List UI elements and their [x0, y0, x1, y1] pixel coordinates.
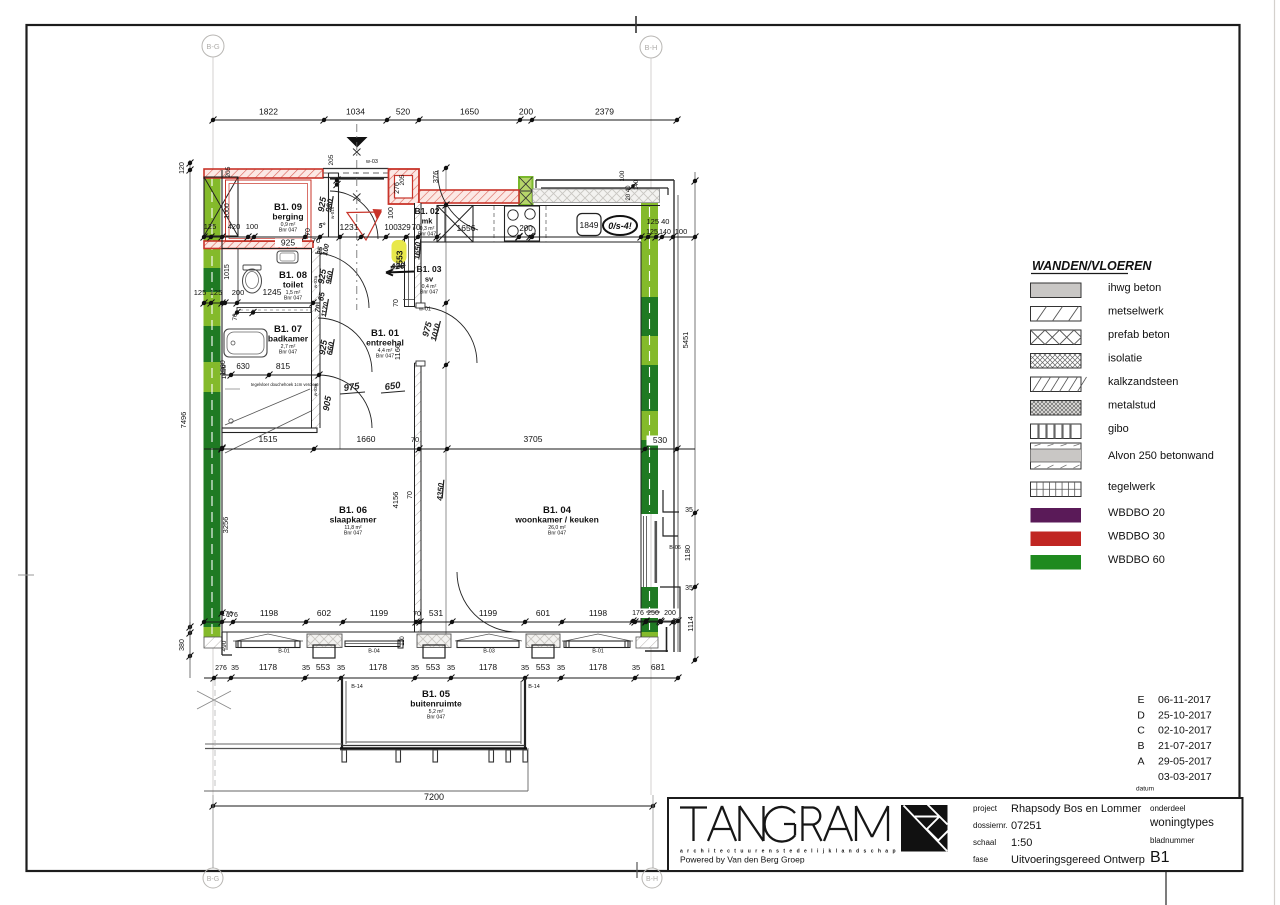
svg-text:29-05-2017: 29-05-2017: [1158, 756, 1212, 768]
svg-text:601: 601: [536, 608, 550, 618]
svg-text:Bnr 047: Bnr 047: [279, 228, 297, 234]
svg-text:tegelvloer douchehoek 1cm verd: tegelvloer douchehoek 1cm verdiept: [251, 382, 319, 387]
svg-text:531: 531: [429, 608, 443, 618]
svg-text:kalkzandsteen: kalkzandsteen: [1108, 376, 1178, 388]
svg-text:onderdeel: onderdeel: [1150, 804, 1186, 813]
svg-text:70: 70: [232, 313, 239, 321]
svg-text:1198: 1198: [260, 608, 279, 618]
svg-text:1515: 1515: [259, 434, 278, 444]
svg-text:70: 70: [411, 435, 419, 444]
svg-text:1:50: 1:50: [1011, 837, 1032, 849]
svg-text:1656: 1656: [457, 223, 476, 233]
svg-text:70: 70: [407, 491, 414, 499]
svg-text:376: 376: [431, 171, 440, 184]
svg-text:tegelwerk: tegelwerk: [1108, 481, 1156, 493]
svg-text:ihwg beton: ihwg beton: [1108, 282, 1161, 294]
svg-text:630: 630: [236, 362, 250, 371]
svg-text:Uitvoeringsgereed Ontwerp: Uitvoeringsgereed Ontwerp: [1011, 854, 1145, 866]
svg-text:Bnr 047: Bnr 047: [420, 290, 438, 296]
svg-text:125: 125: [646, 229, 658, 236]
svg-text:5°: 5°: [319, 222, 326, 230]
svg-text:4156: 4156: [391, 492, 400, 509]
svg-text:2379: 2379: [595, 107, 614, 117]
svg-text:100: 100: [388, 207, 395, 219]
svg-text:Bnr 047: Bnr 047: [427, 715, 445, 721]
svg-text:530: 530: [653, 435, 667, 445]
svg-text:Rhapsody Bos en Lommer: Rhapsody Bos en Lommer: [1011, 803, 1142, 815]
svg-text:1034: 1034: [346, 107, 365, 117]
svg-text:1660: 1660: [357, 434, 376, 444]
svg-text:1199: 1199: [370, 608, 389, 618]
svg-text:prefab beton: prefab beton: [1108, 329, 1170, 341]
svg-text:35: 35: [685, 507, 693, 514]
svg-text:C: C: [1137, 725, 1145, 737]
svg-text:Bnr 047: Bnr 047: [376, 354, 394, 360]
svg-text:1650: 1650: [460, 107, 479, 117]
svg-text:B-14: B-14: [351, 684, 363, 690]
svg-text:110: 110: [400, 636, 406, 646]
svg-text:slaapkamer: slaapkamer: [330, 515, 377, 525]
svg-text:1178: 1178: [259, 662, 278, 672]
svg-text:Powered by Van den Berg Groep: Powered by Van den Berg Groep: [680, 855, 805, 865]
svg-text:35: 35: [632, 663, 640, 672]
svg-text:1180: 1180: [683, 545, 692, 561]
svg-text:70: 70: [413, 611, 421, 618]
svg-text:200: 200: [519, 224, 533, 233]
svg-text:B: B: [1137, 740, 1144, 752]
svg-text:602: 602: [317, 608, 331, 618]
svg-text:1199: 1199: [479, 608, 498, 618]
svg-text:B-03: B-03: [483, 649, 495, 655]
svg-text:B-01: B-01: [278, 649, 290, 655]
svg-text:B-04: B-04: [368, 649, 380, 655]
svg-text:mk: mk: [422, 217, 434, 226]
svg-text:B-G: B-G: [207, 876, 219, 883]
svg-text:A: A: [1137, 756, 1144, 768]
svg-text:100: 100: [619, 170, 626, 181]
svg-text:1000: 1000: [224, 203, 231, 219]
svg-text:4350: 4350: [435, 482, 446, 502]
svg-text:B-14: B-14: [528, 684, 540, 690]
svg-text:w-01: w-01: [418, 307, 431, 313]
svg-text:100: 100: [384, 223, 398, 232]
svg-text:B-01: B-01: [592, 649, 604, 655]
svg-text:205: 205: [399, 174, 406, 185]
svg-text:329: 329: [397, 223, 411, 232]
svg-text:isolatie: isolatie: [1108, 353, 1142, 365]
svg-text:1178: 1178: [589, 662, 608, 672]
svg-text:1231: 1231: [340, 222, 359, 232]
svg-text:21-07-2017: 21-07-2017: [1158, 740, 1212, 752]
svg-text:35: 35: [231, 665, 239, 672]
svg-text:schaal: schaal: [973, 838, 996, 847]
svg-text:B-H: B-H: [646, 876, 658, 883]
svg-text:metselwerk: metselwerk: [1108, 306, 1164, 318]
svg-text:1114: 1114: [686, 616, 695, 632]
svg-text:70: 70: [393, 299, 400, 307]
svg-text:35: 35: [411, 663, 419, 672]
svg-text:woonkamer / keuken: woonkamer / keuken: [514, 515, 599, 525]
svg-text:B1: B1: [1150, 849, 1170, 866]
svg-text:5451: 5451: [681, 332, 690, 349]
svg-text:project: project: [973, 804, 998, 813]
svg-text:125: 125: [194, 288, 207, 297]
svg-text:datum: datum: [1136, 786, 1154, 793]
svg-text:200: 200: [519, 107, 533, 117]
svg-text:1245: 1245: [263, 287, 282, 297]
svg-text:125 40: 125 40: [647, 217, 670, 226]
svg-text:520: 520: [396, 107, 410, 117]
svg-text:metalstud: metalstud: [1108, 400, 1156, 412]
svg-text:3256: 3256: [221, 517, 230, 534]
svg-text:176: 176: [226, 612, 238, 619]
svg-text:1822: 1822: [259, 107, 278, 117]
svg-text:200: 200: [664, 610, 676, 617]
svg-text:Bnr 047: Bnr 047: [284, 296, 302, 302]
svg-text:3705: 3705: [524, 434, 543, 444]
svg-text:buitenruimte: buitenruimte: [410, 699, 462, 709]
svg-text:35: 35: [521, 663, 529, 672]
svg-text:200: 200: [232, 288, 245, 297]
svg-text:176: 176: [632, 610, 644, 617]
svg-text:35: 35: [302, 663, 310, 672]
svg-text:140: 140: [634, 179, 640, 190]
svg-text:B1. 02: B1. 02: [414, 206, 439, 216]
svg-text:1650: 1650: [412, 241, 423, 260]
svg-text:B-G: B-G: [206, 42, 220, 51]
svg-text:1880: 1880: [221, 364, 228, 379]
svg-text:140: 140: [659, 229, 671, 236]
svg-text:420: 420: [228, 222, 241, 231]
svg-text:toilet: toilet: [283, 280, 303, 290]
svg-text:380: 380: [179, 639, 186, 651]
svg-text:B-06: B-06: [669, 545, 681, 551]
svg-text:100: 100: [246, 222, 259, 231]
svg-text:WBDBO 60: WBDBO 60: [1108, 554, 1165, 566]
svg-text:35: 35: [557, 663, 565, 672]
svg-text:553: 553: [426, 662, 440, 672]
svg-text:Alvon 250 betonwand: Alvon 250 betonwand: [1108, 450, 1214, 462]
svg-text:25-10-2017: 25-10-2017: [1158, 710, 1212, 722]
svg-text:20 40: 20 40: [626, 185, 632, 201]
svg-text:06-11-2017: 06-11-2017: [1158, 694, 1211, 706]
svg-text:WANDEN/VLOEREN: WANDEN/VLOEREN: [1032, 259, 1152, 273]
svg-text:553: 553: [316, 662, 330, 672]
svg-text:Bnr 047: Bnr 047: [279, 350, 297, 356]
svg-text:badkamer: badkamer: [268, 334, 309, 344]
svg-text:125: 125: [204, 222, 217, 231]
svg-text:bladnummer: bladnummer: [1150, 836, 1195, 845]
svg-text:815: 815: [276, 361, 290, 371]
svg-text:Bnr 047: Bnr 047: [548, 531, 566, 537]
svg-text:70: 70: [305, 228, 312, 236]
svg-text:berging: berging: [272, 212, 303, 222]
svg-text:125: 125: [210, 288, 223, 297]
svg-text:0/s-4!: 0/s-4!: [608, 221, 632, 231]
svg-text:w-02a: w-02a: [313, 383, 318, 396]
svg-text:dossiernr.: dossiernr.: [973, 821, 1008, 830]
svg-text:1166: 1166: [393, 344, 402, 360]
svg-text:681: 681: [651, 662, 665, 672]
svg-text:03-03-2017: 03-03-2017: [1158, 771, 1212, 783]
svg-text:7200: 7200: [424, 792, 444, 802]
svg-text:sv: sv: [425, 275, 434, 284]
svg-text:Bnr 047: Bnr 047: [344, 531, 362, 537]
svg-text:70: 70: [312, 236, 320, 245]
svg-text:B1. 03: B1. 03: [416, 264, 441, 274]
svg-text:02-10-2017: 02-10-2017: [1158, 725, 1212, 737]
svg-text:woningtypes: woningtypes: [1149, 817, 1214, 829]
svg-text:7496: 7496: [179, 412, 188, 429]
svg-text:276: 276: [215, 665, 227, 672]
svg-text:WBDBO 30: WBDBO 30: [1108, 531, 1165, 543]
svg-text:D: D: [1137, 710, 1145, 722]
svg-text:35: 35: [337, 663, 345, 672]
svg-text:1178: 1178: [479, 662, 498, 672]
svg-text:1015: 1015: [224, 264, 231, 280]
svg-text:553: 553: [536, 662, 550, 672]
svg-text:1198: 1198: [589, 608, 608, 618]
svg-text:fase: fase: [973, 855, 989, 864]
svg-text:205: 205: [328, 154, 335, 165]
svg-text:250: 250: [647, 610, 659, 617]
svg-text:100: 100: [675, 227, 688, 236]
svg-text:07251: 07251: [1011, 820, 1042, 832]
svg-text:35: 35: [685, 585, 693, 592]
svg-text:70: 70: [412, 223, 421, 232]
svg-text:WBDBO 20: WBDBO 20: [1108, 507, 1165, 519]
svg-text:w-03: w-03: [365, 159, 378, 165]
svg-text:120: 120: [179, 162, 186, 174]
svg-text:1178: 1178: [369, 662, 388, 672]
svg-text:35: 35: [447, 663, 455, 672]
svg-text:1849: 1849: [580, 220, 599, 230]
svg-text:gibo: gibo: [1108, 423, 1129, 435]
svg-text:925: 925: [281, 238, 295, 248]
svg-text:E: E: [1137, 694, 1144, 706]
svg-text:205: 205: [225, 166, 232, 177]
svg-text:B-H: B-H: [645, 43, 658, 52]
